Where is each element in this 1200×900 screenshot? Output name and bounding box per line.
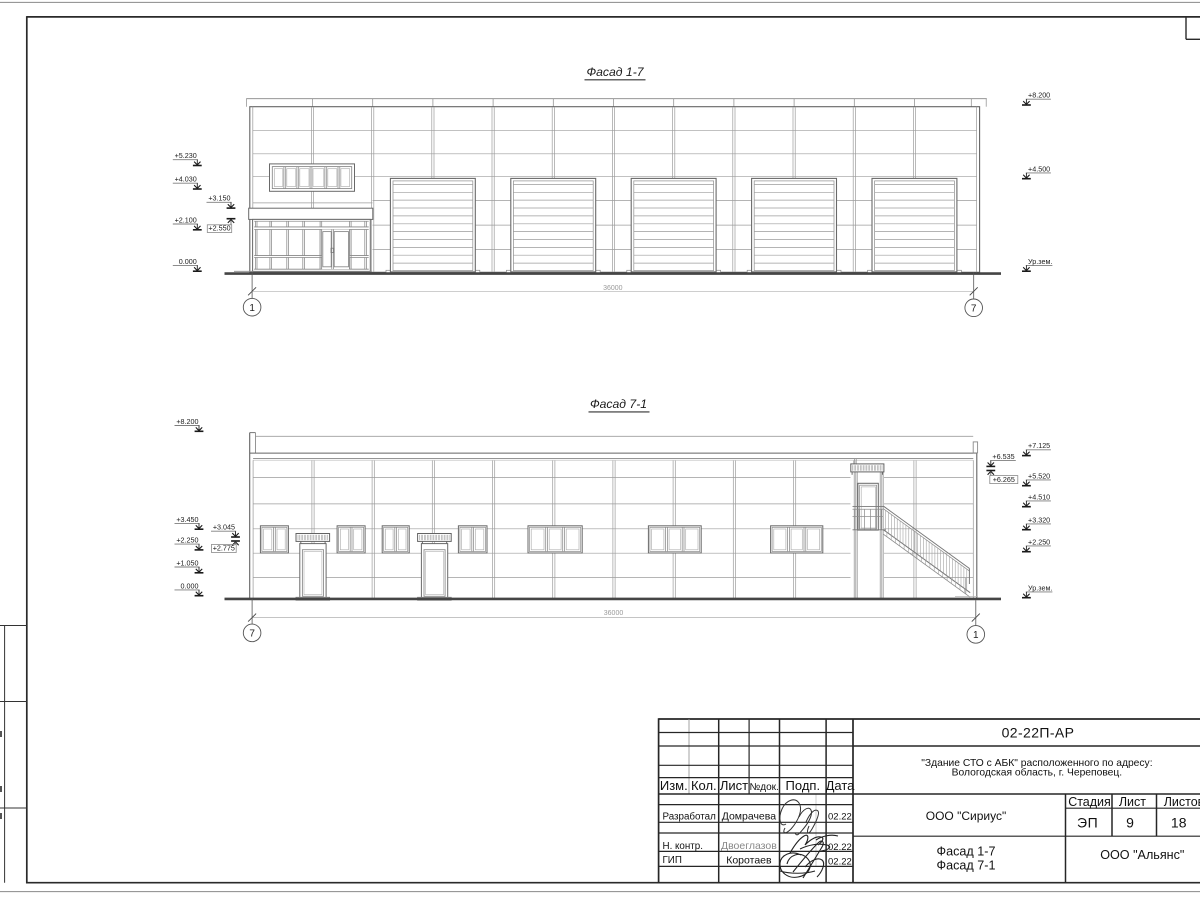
svg-text:02.22: 02.22 bbox=[828, 812, 852, 823]
svg-text:Двоеглазов: Двоеглазов bbox=[721, 840, 777, 852]
svg-text:Фасад 1-7: Фасад 1-7 bbox=[937, 845, 996, 859]
svg-text:+6.535: +6.535 bbox=[992, 452, 1014, 461]
svg-text:Кол.: Кол. bbox=[691, 778, 717, 793]
svg-text:Лист: Лист bbox=[720, 778, 748, 793]
svg-text:Подп.: Подп. bbox=[786, 778, 821, 793]
svg-text:18: 18 bbox=[1171, 814, 1187, 830]
svg-text:Вологодская область, г. Черепо: Вологодская область, г. Череповец. bbox=[952, 766, 1123, 778]
svg-text:+7.125: +7.125 bbox=[1028, 441, 1050, 450]
svg-text:ЭП: ЭП bbox=[1077, 814, 1098, 830]
svg-text:Ур.зем.: Ур.зем. bbox=[1028, 583, 1052, 592]
svg-text:7: 7 bbox=[249, 629, 255, 640]
svg-text:+1.050: +1.050 bbox=[176, 558, 198, 567]
svg-text:+3.150: +3.150 bbox=[208, 194, 230, 203]
svg-text:+2.550: +2.550 bbox=[208, 224, 230, 233]
svg-text:+5.230: +5.230 bbox=[175, 151, 197, 160]
svg-text:36000: 36000 bbox=[604, 610, 624, 617]
svg-text:Домрачева: Домрачева bbox=[722, 811, 777, 823]
svg-text:Дата: Дата bbox=[826, 778, 856, 793]
svg-text:+3.450: +3.450 bbox=[176, 515, 198, 524]
svg-text:Н. контр.: Н. контр. bbox=[663, 841, 703, 852]
svg-text:9: 9 bbox=[1126, 814, 1134, 830]
svg-text:Разработал: Разработал bbox=[663, 812, 717, 823]
svg-text:+2.250: +2.250 bbox=[176, 536, 198, 545]
svg-text:+3.320: +3.320 bbox=[1028, 515, 1050, 524]
svg-text:02.22: 02.22 bbox=[828, 857, 852, 868]
svg-text:0.000: 0.000 bbox=[181, 581, 199, 590]
svg-text:02-22П-АР: 02-22П-АР bbox=[1002, 724, 1075, 740]
svg-text:Фасад 7-1: Фасад 7-1 bbox=[937, 858, 996, 872]
svg-text:02.22: 02.22 bbox=[828, 842, 852, 853]
svg-text:7: 7 bbox=[971, 303, 977, 314]
svg-text:Фасад 1-7: Фасад 1-7 bbox=[586, 65, 644, 79]
svg-text:+4.500: +4.500 bbox=[1028, 164, 1050, 173]
svg-text:Коротаев: Коротаев bbox=[726, 855, 772, 867]
svg-text:Изм.: Изм. bbox=[660, 778, 688, 793]
svg-text:1: 1 bbox=[973, 630, 979, 641]
svg-text:+6.265: +6.265 bbox=[993, 475, 1015, 484]
svg-text:+4.510: +4.510 bbox=[1028, 492, 1050, 501]
svg-text:+5.520: +5.520 bbox=[1028, 471, 1050, 480]
svg-text:+2.250: +2.250 bbox=[1028, 537, 1050, 546]
svg-text:+8.200: +8.200 bbox=[1028, 91, 1050, 100]
svg-text:Фасад 7-1: Фасад 7-1 bbox=[590, 397, 647, 411]
svg-text:+4.030: +4.030 bbox=[175, 175, 197, 184]
svg-text:+3.045: +3.045 bbox=[213, 523, 235, 532]
svg-text:36000: 36000 bbox=[603, 285, 623, 292]
svg-text:ООО "Альянс": ООО "Альянс" bbox=[1100, 848, 1184, 862]
svg-text:Листов: Листов bbox=[1164, 795, 1200, 809]
svg-text:+2.100: +2.100 bbox=[175, 215, 197, 224]
svg-text:+2.775: +2.775 bbox=[213, 544, 235, 553]
svg-text:0.000: 0.000 bbox=[179, 257, 197, 266]
svg-text:ООО "Сириус": ООО "Сириус" bbox=[926, 809, 1006, 823]
svg-text:№док.: №док. bbox=[750, 782, 779, 793]
svg-text:Ур.зем.: Ур.зем. bbox=[1028, 257, 1052, 266]
svg-text:Лист: Лист bbox=[1119, 795, 1146, 809]
svg-text:1: 1 bbox=[249, 303, 255, 314]
svg-text:+8.200: +8.200 bbox=[176, 417, 198, 426]
svg-text:ГИП: ГИП bbox=[663, 855, 682, 866]
svg-text:Стадия: Стадия bbox=[1068, 795, 1111, 809]
